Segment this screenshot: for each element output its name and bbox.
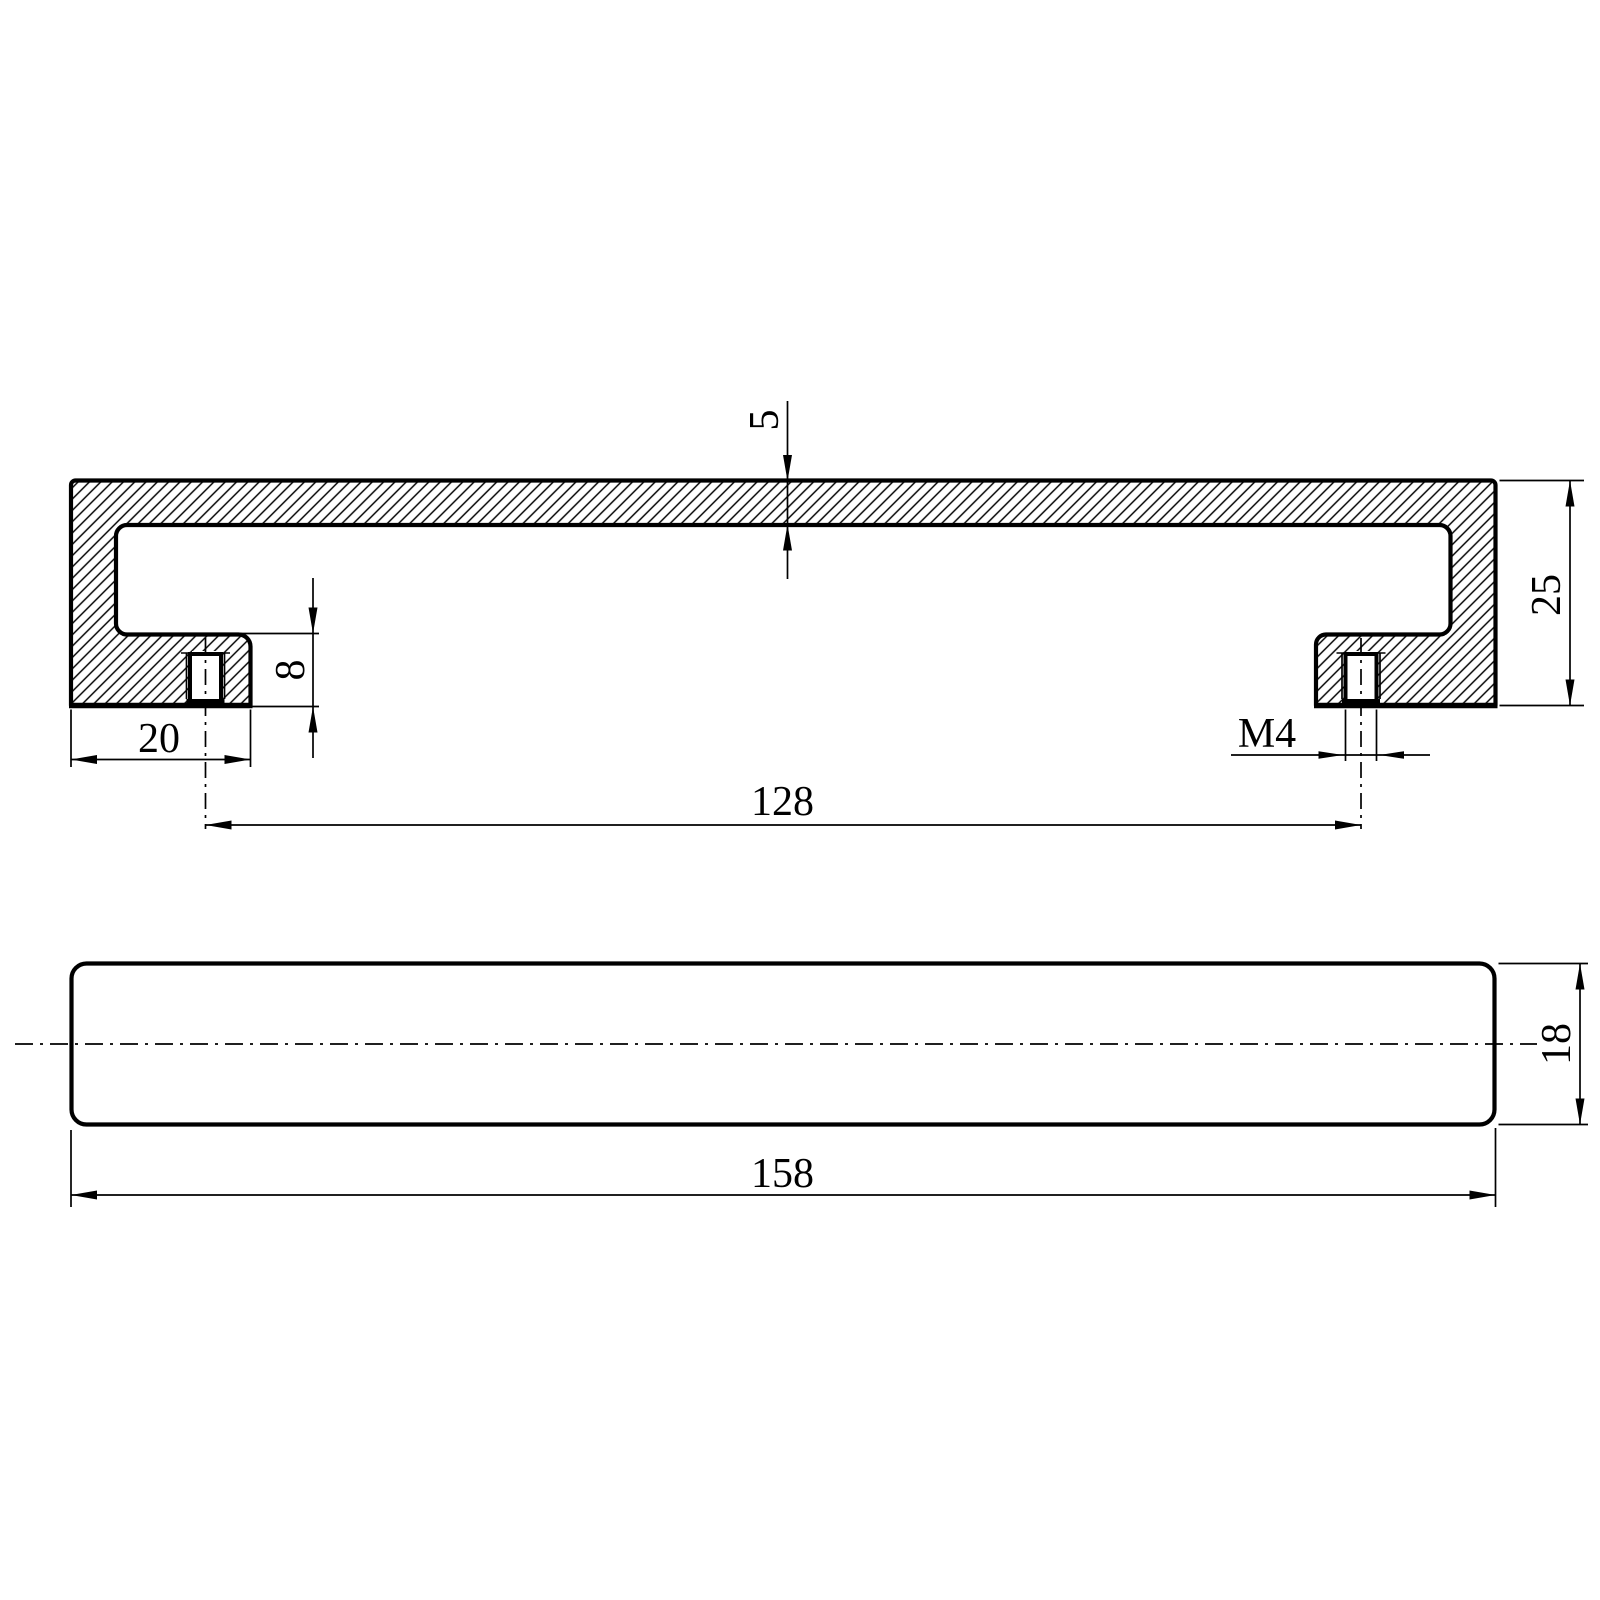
svg-text:20: 20	[138, 716, 180, 762]
svg-text:5: 5	[742, 410, 788, 431]
svg-text:128: 128	[751, 779, 814, 825]
svg-text:25: 25	[1524, 574, 1570, 616]
svg-text:18: 18	[1534, 1023, 1580, 1065]
svg-text:8: 8	[268, 660, 314, 681]
svg-text:M4: M4	[1238, 711, 1296, 757]
svg-text:158: 158	[751, 1151, 814, 1197]
